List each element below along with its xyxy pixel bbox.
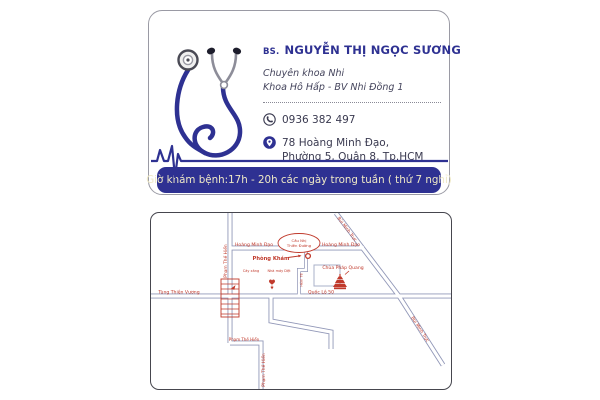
map: Cầu Nhị Thiên Đường Hoàng Minh Đạo Hoàng… (151, 213, 452, 390)
map-card: Cầu Nhị Thiên Đường Hoàng Minh Đạo Hoàng… (150, 212, 452, 390)
dotted-divider (263, 102, 441, 103)
business-card: BS. NGUYỄN THỊ NGỌC SƯƠNG Chuyên khoa Nh… (148, 10, 450, 195)
specialty-line: Chuyên khoa Nhi (263, 67, 445, 81)
roundabout-label-line2: Thiên Đường (286, 243, 312, 248)
phone-icon (263, 113, 276, 126)
clinic-marker-icon (306, 254, 311, 259)
pagoda-label: Chùa Pháp Quang (322, 264, 363, 271)
road-label-hoang-minh-dao-right: Hoàng Minh Đạo (322, 241, 360, 248)
alley-label: Hẻm 78 (300, 273, 304, 286)
doctor-name: NGUYỄN THỊ NGỌC SƯƠNG (285, 43, 461, 57)
doctor-title-line: BS. NGUYỄN THỊ NGỌC SƯƠNG (263, 39, 445, 58)
road-label-pham-the-hien-left: Phạm Thế Hiển (222, 244, 229, 278)
road-label-bui-minh-truc-top: Bùi Minh Trực (336, 215, 360, 243)
heart-icon (269, 280, 275, 290)
department-line: Khoa Hô Hấp - BV Nhi Đồng 1 (263, 81, 445, 95)
small-label-right: Nhà máy Dệt (267, 269, 291, 273)
clinic-arrow-icon (288, 256, 299, 258)
road-label-hoang-minh-dao-left: Hoàng Minh Đạo (235, 241, 273, 248)
road-label-quoc-lo-50: Quốc Lộ 50 (308, 289, 334, 296)
page: BS. NGUYỄN THỊ NGỌC SƯƠNG Chuyên khoa Nh… (0, 0, 600, 400)
clinic-arrowhead-icon (298, 255, 301, 258)
road-label-pham-the-hien-mid: Phạm Thế Hiển (229, 337, 260, 342)
clinic-label: Phòng Khám (253, 255, 290, 262)
phone-row: 0936 382 497 (263, 113, 445, 126)
phone-number: 0936 382 497 (282, 114, 355, 126)
pagoda-arrow-icon (345, 271, 349, 275)
small-label-left: Cây xăng (243, 269, 259, 273)
doctor-prefix: BS. (263, 47, 279, 57)
road-label-pham-the-hien-bottom: Phạm Thế Hiển (260, 353, 267, 387)
heartbeat-line-icon (150, 143, 450, 183)
road-label-tung-thien-vuong: Tùng Thiện Vương (157, 289, 199, 296)
road-label-bui-minh-truc-bottom: Bùi Minh Trực (409, 315, 431, 344)
